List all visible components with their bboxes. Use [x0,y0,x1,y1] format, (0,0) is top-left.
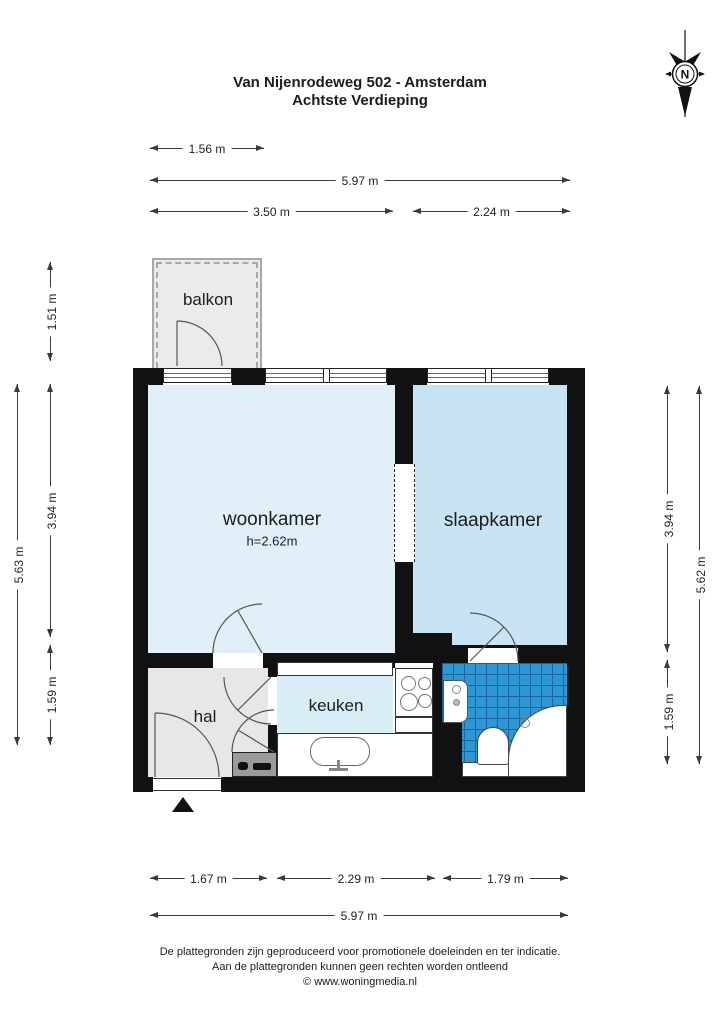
room-label-slaapkamer: slaapkamer [444,510,542,532]
ceiling-height-note: h=2.62m [247,534,298,549]
disclaimer-line1: De plattegronden zijn geproduceerd voor … [0,945,720,960]
dim-bathroom-width: 1.79 m [443,878,568,879]
window-mullion [323,369,330,382]
burner [400,693,418,711]
dim-total-depth-right: 5.62 m [699,386,700,764]
wall-bottom [221,777,585,792]
window-mullion [485,369,492,382]
kitchen-faucet-bar [329,768,348,771]
kitchen-upper-cabinet [277,662,393,676]
meter-glyph [238,762,248,770]
kitchen-counter [277,733,433,777]
dim-bathroom-depth: 1.59 m [667,660,668,764]
wall-left [133,368,148,792]
disclaimer: De plattegronden zijn geproduceerd voor … [0,945,720,990]
burner [418,677,431,690]
washbasin-drain [453,699,460,706]
bathroom-door-opening [468,648,518,663]
burner [401,676,416,691]
meter-glyph [253,763,271,770]
dim-balkon-width: 1.56 m [150,148,264,149]
kitchen-sink [310,737,370,766]
room-label-woonkamer: woonkamer [223,509,321,531]
wall-right [567,368,585,792]
dim-hal-width: 1.67 m [150,878,267,879]
floor-line: Achtste Verdieping [0,92,720,110]
kitchen-lower-cabinet [395,717,433,733]
room-label-hal: hal [194,707,217,727]
woonkamer-door-opening [213,653,263,668]
room-label-balkon: balkon [183,290,233,310]
floor-plan-page: Van Nijenrodeweg 502 - Amsterdam Achtste… [0,0,720,1018]
address-line: Van Nijenrodeweg 502 - Amsterdam [0,74,720,92]
wall-top-mid1 [232,368,265,385]
dim-slaapkamer-depth: 3.94 m [667,386,668,652]
page-title: Van Nijenrodeweg 502 - Amsterdam Achtste… [0,74,720,110]
dim-total-width-bottom: 5.97 m [150,915,568,916]
entrance-arrow-icon [172,797,194,812]
woonkamer-slaapkamer-opening [394,464,415,562]
wall-bottom-left [133,777,153,792]
balcony-railing [156,262,258,368]
dim-woonkamer-depth: 3.94 m [50,384,51,637]
wall-step [413,633,452,648]
window-woonkamer [265,368,387,383]
balcony-door-glazing [163,368,232,383]
room-label-keuken: keuken [309,696,364,716]
disclaimer-line2: Aan de plattegronden kunnen geen rechten… [0,960,720,975]
dim-keuken-width: 2.29 m [277,878,435,879]
dim-total-width-top: 5.97 m [150,180,570,181]
dim-balkon-depth: 1.51 m [50,262,51,361]
keuken-door-opening [268,677,277,725]
window-slaapkamer [427,368,549,383]
copyright-line: © www.woningmedia.nl [0,975,720,990]
dim-total-depth-left: 5.63 m [17,384,18,745]
dim-hal-depth: 1.59 m [50,645,51,745]
balcony [152,258,262,368]
front-door-opening [153,778,221,791]
wall-bathroom-block [433,722,462,777]
washbasin-faucet [452,685,461,694]
washbasin [443,680,468,723]
bathtub-drain [520,718,530,728]
dim-slaapkamer-width: 2.24 m [413,211,570,212]
burner [418,694,432,708]
dim-woonkamer-width: 3.50 m [150,211,393,212]
meter-cabinet [232,752,277,777]
toilet [477,727,509,765]
wall-top-pier [387,368,427,385]
stove [395,668,433,717]
